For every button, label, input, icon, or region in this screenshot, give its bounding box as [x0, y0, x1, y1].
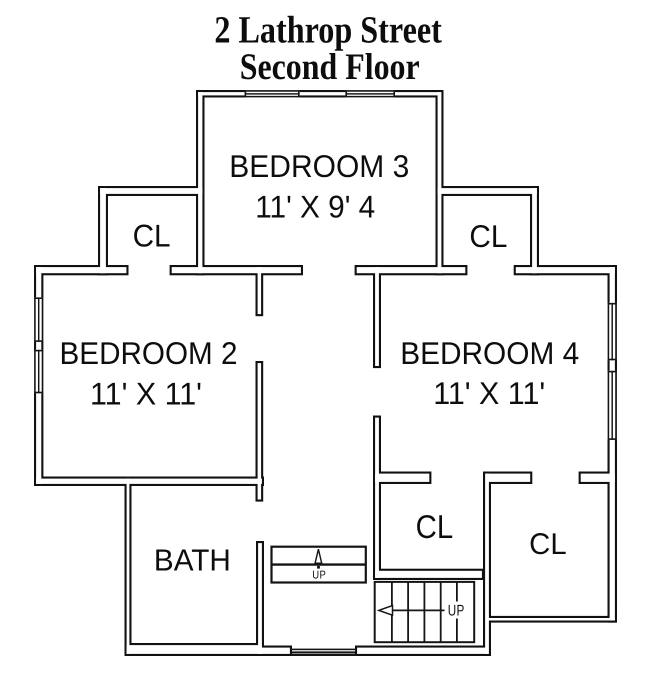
svg-text:2 Lathrop Street: 2 Lathrop Street: [214, 10, 442, 52]
svg-text:11' X 9' 4: 11' X 9' 4: [255, 188, 375, 224]
svg-text:CL: CL: [529, 528, 567, 561]
svg-text:CL: CL: [469, 218, 507, 254]
svg-text:UP: UP: [312, 570, 326, 582]
svg-text:UP: UP: [448, 603, 465, 620]
svg-text:CL: CL: [416, 508, 454, 545]
svg-text:BEDROOM 4: BEDROOM 4: [400, 335, 579, 371]
svg-text:BEDROOM 3: BEDROOM 3: [229, 148, 409, 184]
svg-text:BEDROOM 2: BEDROOM 2: [60, 335, 238, 371]
svg-text:CL: CL: [133, 218, 171, 254]
svg-text:11' X 11': 11' X 11': [433, 375, 545, 411]
svg-text:BATH: BATH: [154, 544, 231, 578]
svg-text:Second Floor: Second Floor: [240, 47, 420, 88]
svg-text:11' X 11': 11' X 11': [90, 375, 202, 411]
